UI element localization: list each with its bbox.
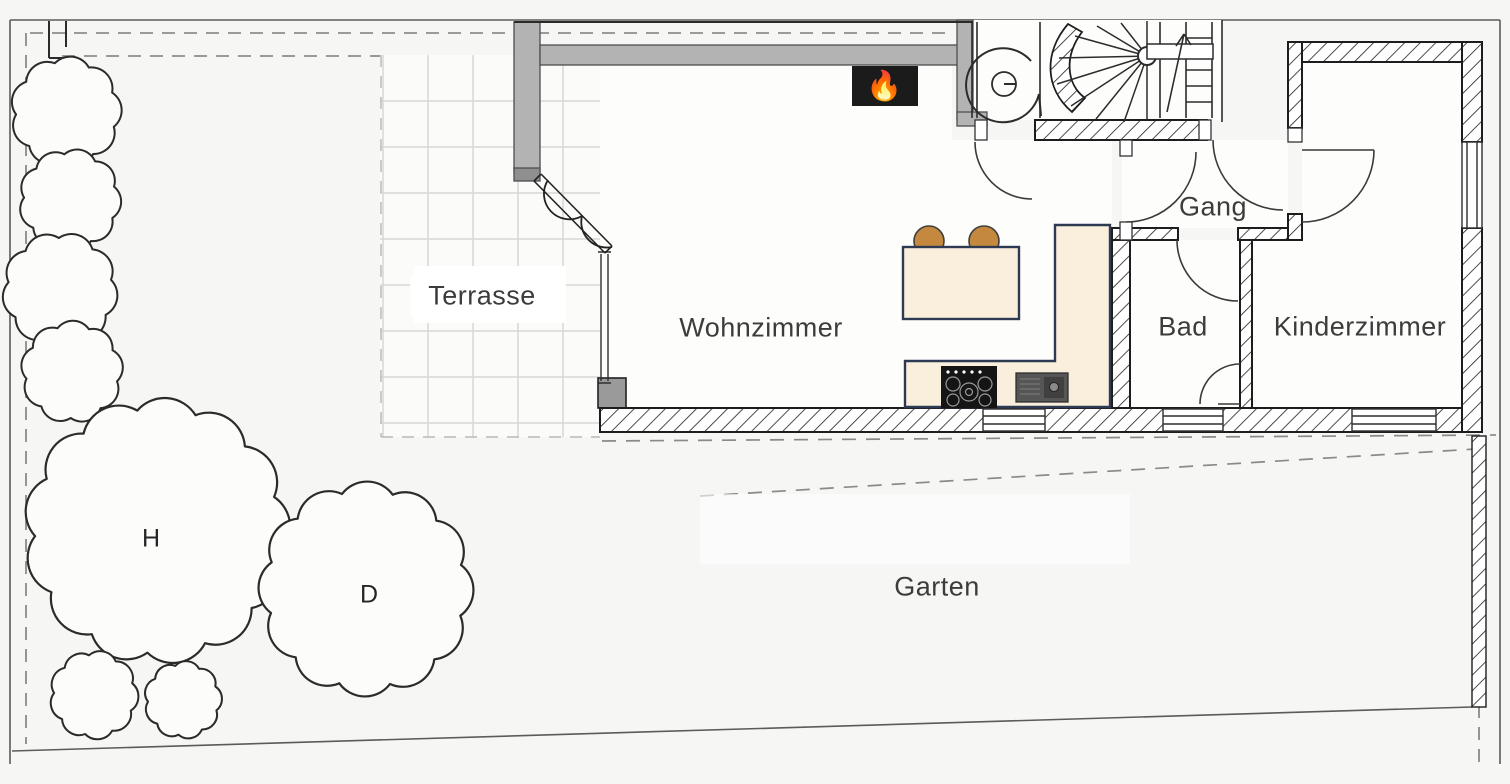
hedge-blob [12,57,122,167]
tree-mark-h: H [142,525,160,554]
window-bottom-bad [1163,409,1223,431]
room-label-terrasse: Terrasse [410,275,554,318]
floorplan-canvas: Terrasse Wohnzimmer Gang Bad Kinderzimme… [0,0,1510,784]
boundary-corner-mark [49,21,66,58]
tree-mark-d: D [360,581,378,610]
room-label-garten: Garten [894,572,980,603]
room-label-bad: Bad [1158,312,1208,343]
window-kinderzimmer-east [1462,142,1482,228]
garden-white-patch [700,494,1130,564]
window-bottom-kinderzimmer [1352,409,1436,431]
fire-icon: 🔥 [866,73,902,102]
room-label-gang: Gang [1179,192,1247,223]
room-label-kinderzimmer: Kinderzimmer [1274,312,1447,343]
sink [1016,373,1068,402]
floor-plan-page: { "plan": { "title": "Erdgeschoss Grundr… [0,0,1510,784]
floor-plan-drawing [0,0,1510,784]
terrace [380,55,600,437]
bush [51,651,139,739]
garden-dashed-lines [602,435,1496,496]
window-bottom-kitchen [983,409,1045,431]
kitchen [903,225,1110,408]
kitchen-island [903,247,1019,319]
room-floors [600,20,1462,408]
room-label-wohnzimmer: Wohnzimmer [679,313,843,344]
stove [941,366,997,408]
bush [145,661,222,738]
